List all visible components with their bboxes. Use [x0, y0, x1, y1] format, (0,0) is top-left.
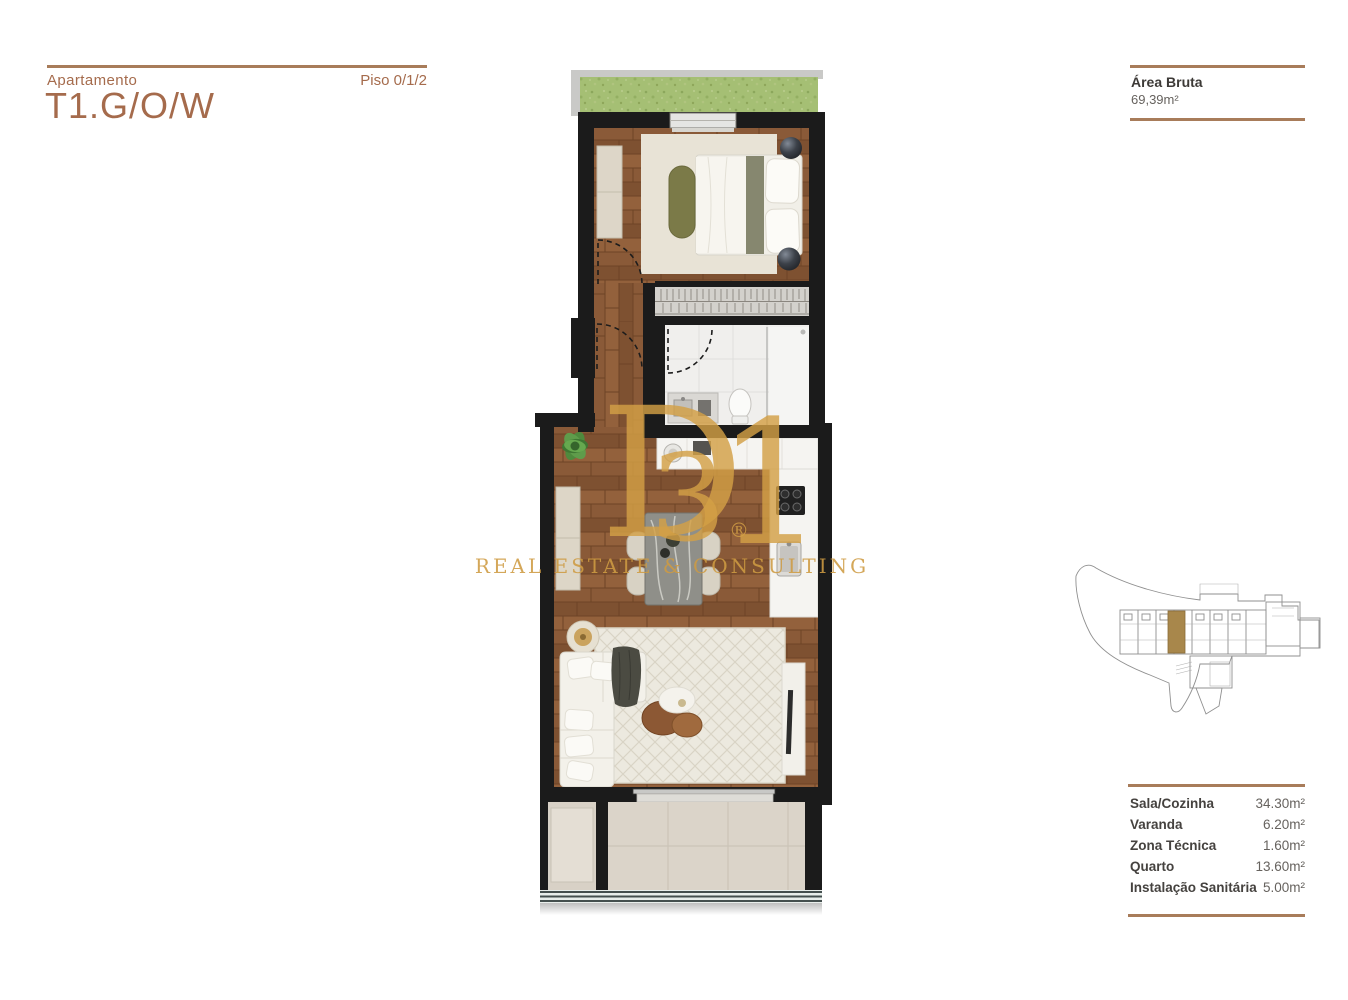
- balcony-door: [633, 789, 775, 794]
- bench-bolster: [669, 166, 695, 238]
- table-row: Zona Técnica 1.60m²: [1128, 835, 1305, 856]
- table-row: Quarto 13.60m²: [1128, 856, 1305, 877]
- site-location-map: [1072, 558, 1336, 748]
- cooktop: [776, 486, 805, 515]
- area-label: Zona Técnica: [1130, 835, 1216, 856]
- areas-rule-bottom: [1128, 914, 1305, 917]
- table-row: Varanda 6.20m²: [1128, 814, 1305, 835]
- gross-area-rule-bottom: [1130, 118, 1305, 121]
- area-value: 5.00m²: [1263, 877, 1305, 898]
- pillow: [765, 208, 800, 253]
- bedside-lamp: [780, 137, 802, 159]
- roof-garden: [571, 70, 823, 116]
- throw-blanket: [611, 646, 641, 707]
- header-rule: [47, 65, 427, 68]
- area-label: Sala/Cozinha: [1130, 793, 1214, 814]
- coffee-table: [659, 687, 695, 713]
- areas-table: Sala/Cozinha 34.30m² Varanda 6.20m² Zona…: [1128, 793, 1305, 898]
- bathroom-stool: [698, 400, 711, 416]
- coffee-table: [672, 713, 702, 737]
- table-row: Instalação Sanitária 5.00m²: [1128, 877, 1305, 898]
- area-value: 6.20m²: [1263, 814, 1305, 835]
- shower-head: [801, 330, 806, 335]
- gross-area-value: 69,39m²: [1131, 92, 1179, 107]
- gross-area-rule-top: [1130, 65, 1305, 68]
- washbasin: [674, 400, 692, 416]
- area-label: Varanda: [1130, 814, 1183, 835]
- areas-rule-top: [1128, 784, 1305, 787]
- tv-console: [782, 663, 805, 775]
- bed-blanket: [746, 156, 764, 254]
- pillow: [765, 158, 800, 203]
- plan-shadow: [540, 903, 822, 915]
- hall-floor: [594, 283, 643, 435]
- site-terrain-outline: [1076, 565, 1319, 712]
- shower: [769, 327, 809, 425]
- area-value: 13.60m²: [1255, 856, 1305, 877]
- table-row: Sala/Cozinha 34.30m²: [1128, 793, 1305, 814]
- toilet: [729, 389, 751, 419]
- living-room: [560, 621, 805, 787]
- gross-area-label: Área Bruta: [1131, 74, 1203, 90]
- cushion: [566, 760, 595, 782]
- area-label: Quarto: [1130, 856, 1174, 877]
- area-label: Instalação Sanitária: [1130, 877, 1257, 898]
- floor-plan-page: Apartamento T1.G/O/W Piso 0/1/2 Área Bru…: [0, 0, 1348, 1000]
- cushion: [564, 735, 594, 758]
- page-title: T1.G/O/W: [45, 85, 215, 127]
- floor-label: Piso 0/1/2: [47, 72, 427, 89]
- area-value: 34.30m²: [1255, 793, 1305, 814]
- bedside-lamp: [778, 248, 801, 271]
- appliance: [693, 441, 711, 455]
- wardrobe: [655, 287, 809, 316]
- area-value: 1.60m²: [1263, 835, 1305, 856]
- highlighted-unit: [1168, 611, 1185, 653]
- cushion: [564, 709, 593, 731]
- floor-plan-drawing: [535, 70, 835, 915]
- balcony: [540, 802, 822, 915]
